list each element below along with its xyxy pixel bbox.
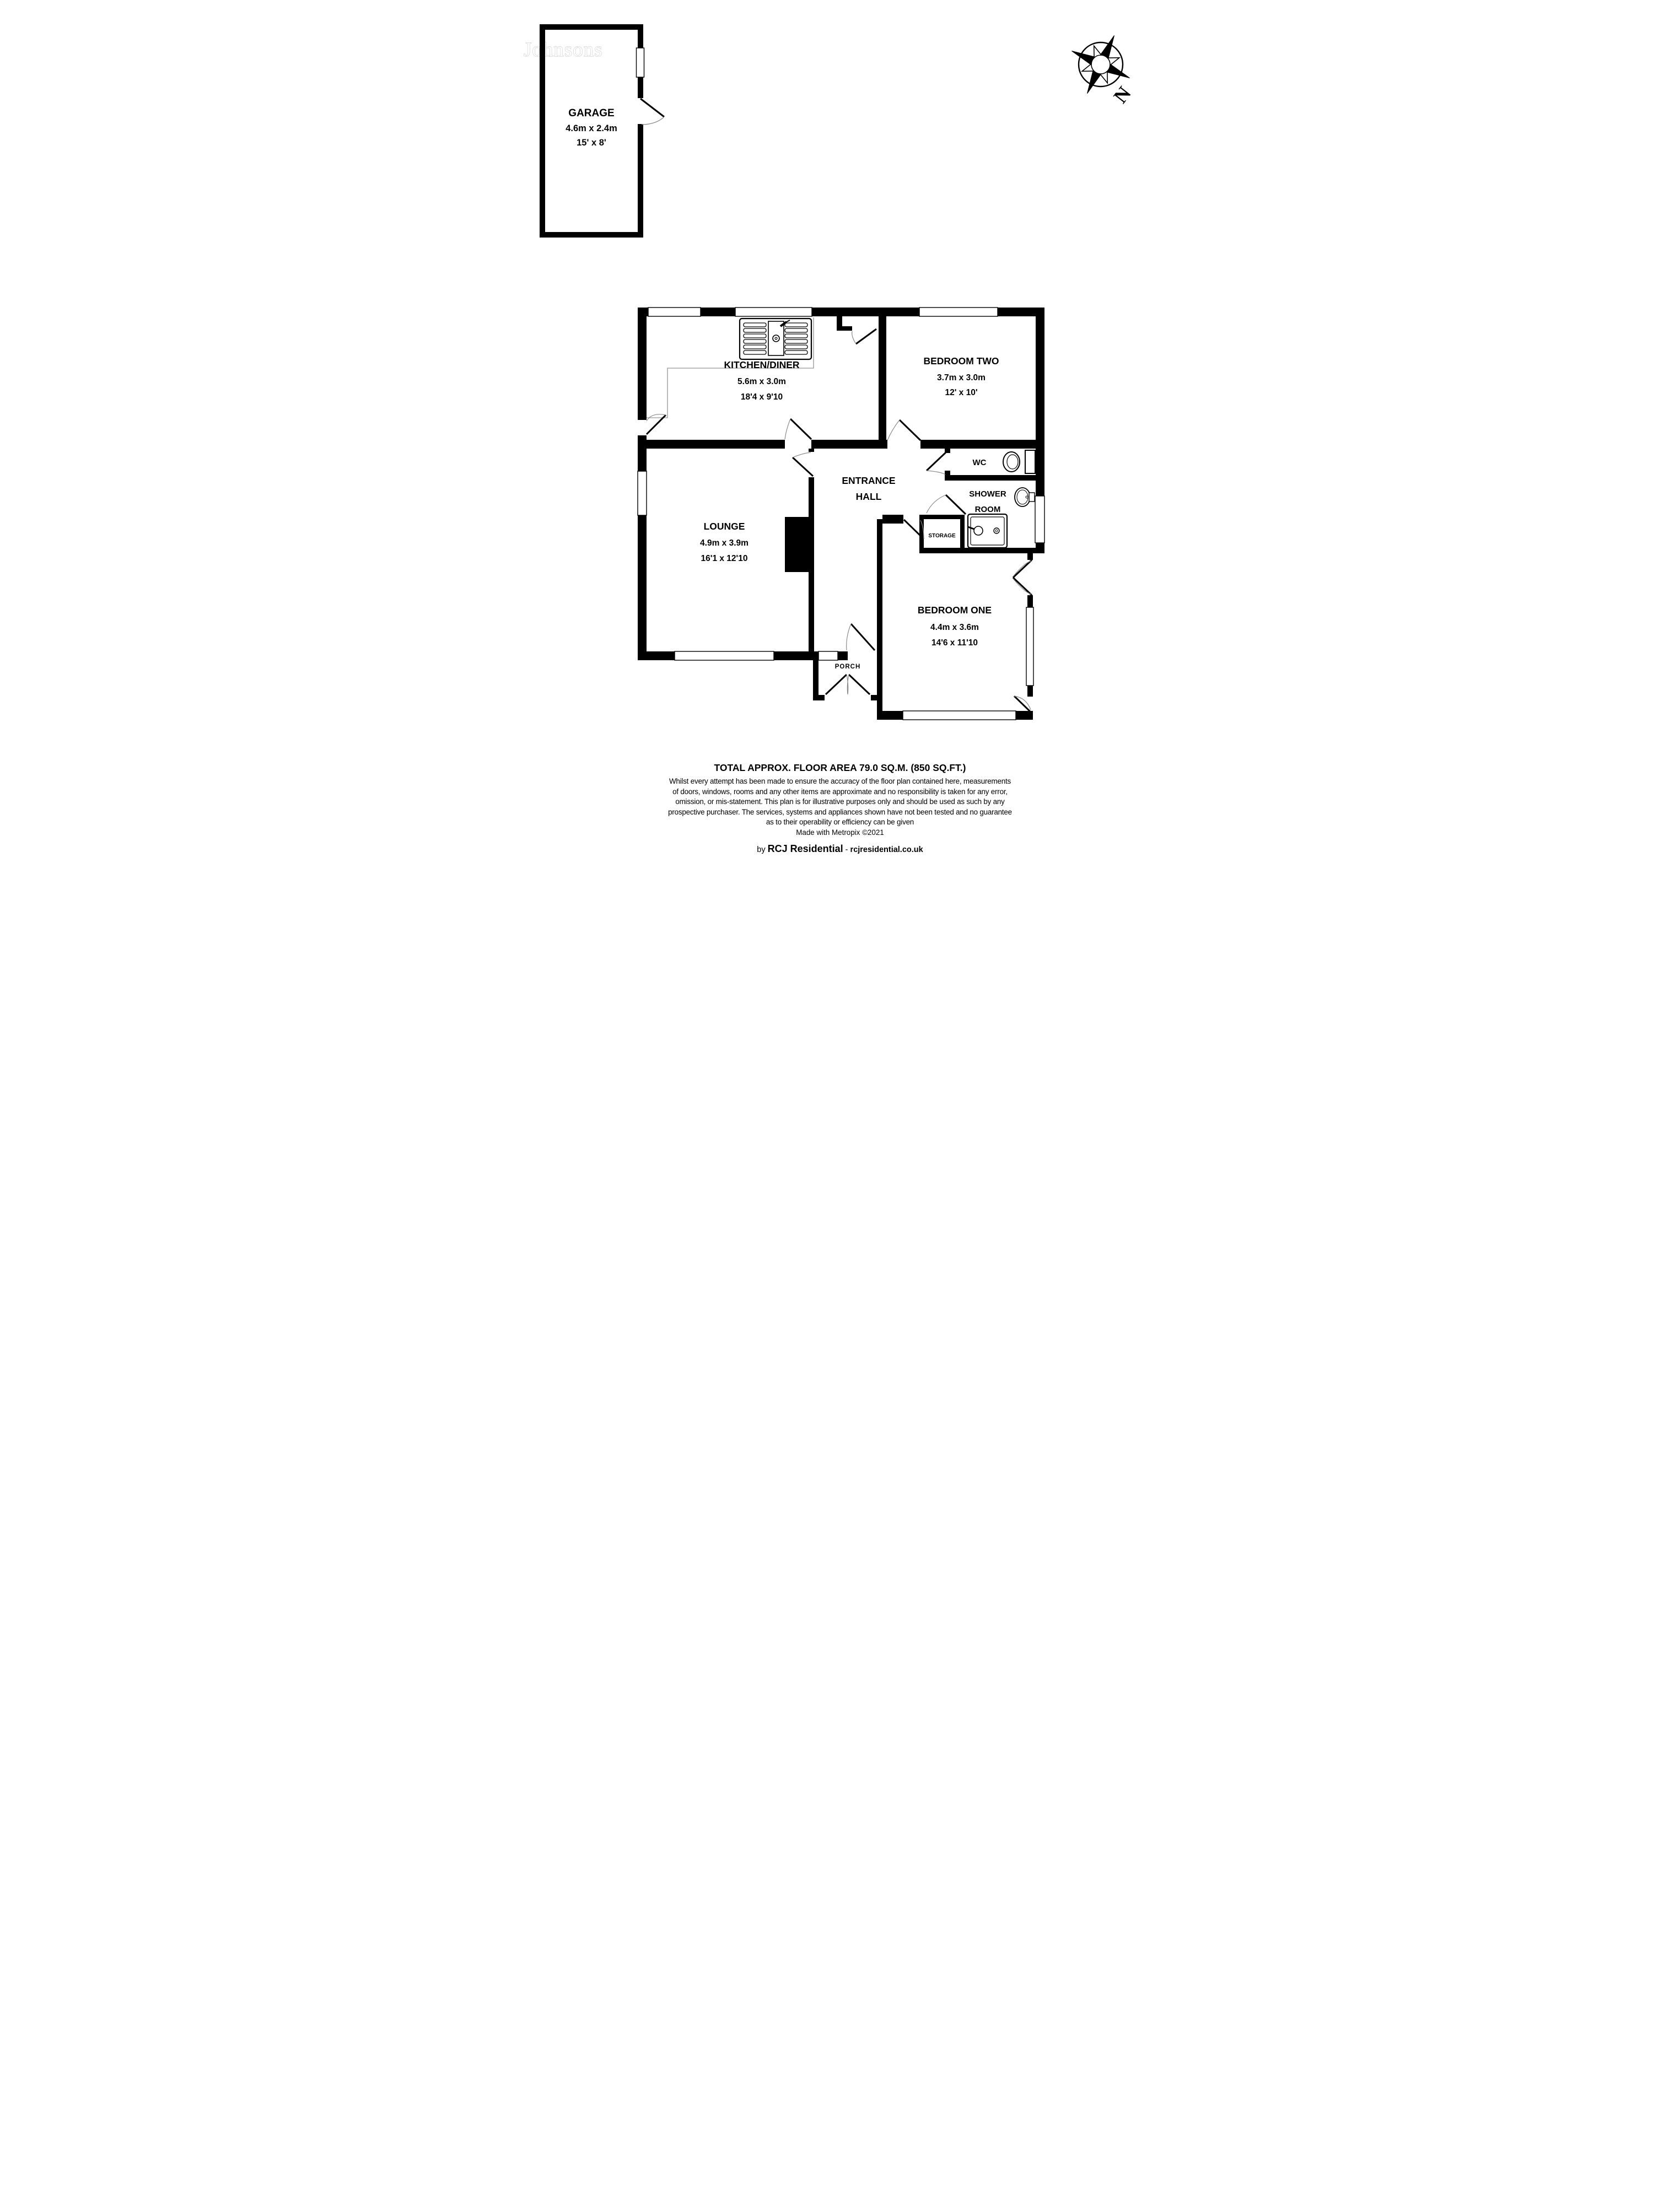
bedroom2-dim-imperial: 12' x 10': [945, 388, 977, 397]
byline-site: rcjresidential.co.uk: [850, 845, 923, 854]
shower-room-door: [946, 495, 966, 514]
bedroom1-french-door-bottom: [1013, 578, 1032, 595]
storage-label: STORAGE: [928, 533, 956, 539]
kitchen-dim-metric: 5.6m x 3.0m: [737, 377, 786, 386]
lounge-dim-metric: 4.9m x 3.9m: [700, 538, 749, 548]
north-label: N: [1109, 82, 1135, 107]
entrance-hall-room: ENTRANCE HALL: [842, 475, 895, 502]
garage-window: [637, 48, 644, 77]
metropix-credit: Made with Metropix ©2021: [509, 828, 1171, 838]
bedroom2-room: BEDROOM TWO 3.7m x 3.0m 12' x 10': [923, 355, 999, 397]
shower-label-line2: ROOM: [975, 505, 1001, 514]
chimney-breast: [785, 517, 814, 572]
kitchen-hall-door: [790, 419, 811, 439]
garage-dim-metric: 4.6m x 2.4m: [566, 123, 617, 133]
agent-byline: by RCJ Residential - rcjresidential.co.u…: [509, 843, 1171, 855]
bedroom1-dim-imperial: 14'6 x 11'10: [931, 638, 978, 648]
disclaimer-line-5: as to their operability or efficiency ca…: [509, 817, 1171, 828]
bedroom1-side-window: [1026, 607, 1033, 686]
lounge-room: LOUNGE 4.9m x 3.9m 16'1 x 12'10: [700, 521, 749, 563]
garage-label: GARAGE: [568, 107, 614, 119]
bedroom1-french-door-top: [1013, 560, 1032, 578]
wash-basin-icon: [1015, 488, 1035, 506]
wc-label: WC: [973, 458, 987, 467]
porch-room: PORCH: [813, 624, 882, 700]
disclaimer-line-1: Whilst every attempt has been made to en…: [509, 777, 1171, 787]
shower-room-door-swing: [927, 495, 946, 513]
bedroom2-label: BEDROOM TWO: [923, 355, 999, 366]
lounge-door: [793, 457, 813, 476]
bedroom2-window: [919, 308, 998, 316]
lounge-door-swing: [793, 452, 811, 457]
porch-door-right: [849, 675, 870, 694]
byline-separator: -: [843, 845, 850, 854]
shower-label-line1: SHOWER: [969, 489, 1006, 499]
storage-room: STORAGE: [919, 515, 965, 553]
agency-watermark: Johnsons: [524, 39, 603, 61]
porch-door-left: [826, 675, 847, 694]
kitchen-sink-icon: [740, 319, 811, 359]
hall-label-line1: ENTRANCE: [842, 475, 895, 486]
kitchen-window-1: [648, 308, 701, 316]
wc-door: [927, 452, 946, 471]
kitchen-hall-door-swing: [785, 419, 790, 439]
disclaimer-line-3: omission, or mis-statement. This plan is…: [509, 797, 1171, 807]
byline-brand: RCJ Residential: [768, 843, 843, 854]
kitchen-dim-imperial: 18'4 x 9'10: [741, 392, 783, 402]
bedroom2-door-swing: [887, 420, 900, 440]
garage-door: [640, 99, 664, 117]
toilet-icon: [1003, 450, 1035, 473]
front-door: [851, 624, 875, 650]
garage-door-swing: [642, 117, 664, 125]
kitchen-window-2: [735, 308, 812, 316]
lounge-side-window: [638, 471, 647, 515]
bedroom1-room: BEDROOM ONE 4.4m x 3.6m 14'6 x 11'10: [877, 515, 1033, 720]
footer: TOTAL APPROX. FLOOR AREA 79.0 SQ.M. (850…: [509, 762, 1171, 855]
shower-tray-icon: [968, 514, 1007, 548]
floorplan-page: Johnsons GARAGE 4.6m x 2.4m 15' x 8' N: [509, 0, 1171, 866]
lounge-label: LOUNGE: [704, 521, 745, 532]
garage-dim-imperial: 15' x 8': [577, 138, 606, 148]
bedroom1-dim-metric: 4.4m x 3.6m: [930, 623, 979, 632]
bedroom1-label: BEDROOM ONE: [918, 605, 992, 616]
lobby-door: [856, 329, 876, 344]
hall-label-line2: HALL: [856, 491, 882, 502]
wc-door-swing: [927, 471, 945, 474]
floorplan-drawing: Johnsons GARAGE 4.6m x 2.4m 15' x 8' N: [509, 0, 1171, 866]
kitchen-room: KITCHEN/DINER 5.6m x 3.0m 18'4 x 9'10: [647, 316, 876, 434]
lounge-front-window: [675, 651, 774, 660]
shower-storage-bottom-wall: [919, 548, 1044, 553]
bedroom1-casement-door: [1014, 696, 1032, 713]
porch-label: PORCH: [835, 664, 861, 670]
lounge-hall-wall: [785, 449, 814, 651]
interior-walls: [638, 316, 1044, 449]
bedroom2-door: [900, 420, 920, 440]
disclaimer-line-2: of doors, windows, rooms and any other i…: [509, 787, 1171, 797]
porch-window: [819, 651, 838, 660]
lobby-door-swing: [852, 331, 856, 344]
bedroom2-dim-metric: 3.7m x 3.0m: [937, 373, 986, 382]
disclaimer-line-4: prospective purchaser. The services, sys…: [509, 807, 1171, 818]
bedroom1-front-window: [903, 711, 1016, 720]
byline-prefix: by: [757, 845, 767, 854]
lounge-dim-imperial: 16'1 x 12'10: [701, 554, 748, 563]
total-floor-area: TOTAL APPROX. FLOOR AREA 79.0 SQ.M. (850…: [509, 762, 1171, 774]
front-door-swing: [847, 624, 851, 650]
compass-rose-icon: N: [1071, 35, 1135, 107]
shower-room-window: [1035, 496, 1044, 543]
wc-room: WC: [927, 449, 1044, 481]
kitchen-label: KITCHEN/DINER: [724, 359, 799, 370]
